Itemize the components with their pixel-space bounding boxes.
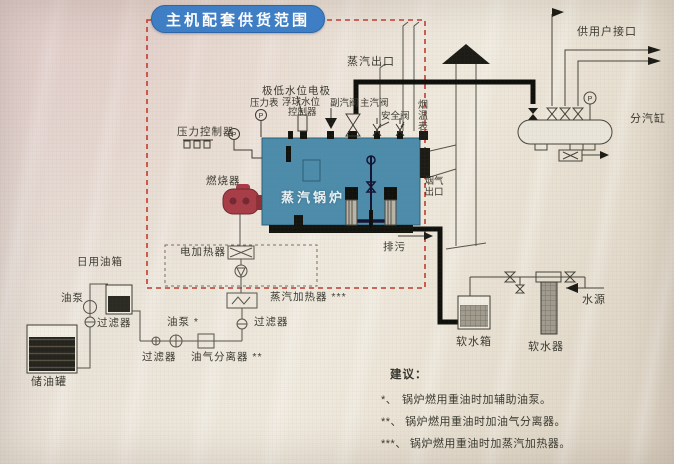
user-port-label: 供用户接口 [577, 26, 637, 38]
oil-pump-left-label: 油泵 [61, 293, 84, 305]
flue-outlet-duct [420, 148, 430, 178]
float-level-label-2: 控制器 [288, 108, 317, 118]
aux-steam-valve-label: 副汽阀 [330, 99, 359, 109]
flue-temp-gauge-label: 烟温表 [417, 100, 429, 133]
note-text: 锅炉燃用重油时加油气分离器。 [405, 416, 566, 428]
steam-heater-unit [227, 293, 257, 308]
vent-pennant [552, 8, 564, 17]
steam-heater-label: 蒸汽加热器 *** [270, 292, 347, 304]
cylinder-drain [559, 144, 609, 161]
filter-mid-label: 过滤器 [254, 317, 289, 329]
pressure-gauge-letter: P [259, 113, 264, 120]
filter-bottom-label: 过滤器 [142, 352, 177, 364]
note-text: 锅炉燃用重油时加蒸汽加热器。 [410, 438, 571, 450]
flue-outlet-label-1: 烟气 [420, 177, 448, 188]
user-port-arrow [648, 57, 661, 65]
steam-outlet-label: 蒸汽出口 [347, 56, 395, 68]
diagram-page: P P P 主机配套供货范围 蒸汽出口 供用户接口 分汽缸 极低水位电极 压力表… [0, 0, 674, 464]
steam-cylinder-label: 分汽缸 [630, 113, 666, 125]
flue-outlet-label-2: 出口 [420, 188, 448, 199]
chimney-cap [442, 44, 490, 64]
user-port-arrow [648, 46, 661, 54]
chimney [430, 44, 490, 249]
pressure-gauge-label: 压力表 [250, 99, 279, 109]
burner-label: 燃烧器 [206, 176, 241, 188]
boiler-base [269, 225, 413, 233]
storage-tank-label: 储油罐 [31, 376, 67, 388]
cylinder-gauge-letter: P [588, 96, 593, 103]
aux-steam-valve [325, 108, 337, 129]
water-softener-column [541, 282, 557, 334]
filter-left-label: 过滤器 [97, 318, 132, 330]
water-source-arrow [566, 283, 578, 293]
daily-oil-tank-label: 日用油箱 [77, 257, 123, 269]
diagram-canvas: P P P [0, 0, 674, 464]
burner [223, 184, 262, 246]
oil-pump-mid-label: 油泵 * [167, 317, 199, 329]
water-softener-label: 软水器 [528, 341, 564, 353]
supply-scope-title: 主机配套供货范围 [151, 5, 325, 33]
soft-water-tank-label: 软水箱 [456, 336, 492, 348]
blowdown-arrow [398, 232, 433, 240]
suggestions-title: 建议： [390, 366, 428, 382]
oil-gas-separator-label: 油气分离器 ** [191, 352, 263, 364]
feed-water-pipe [408, 229, 459, 322]
suggestion-note-1: *、锅炉燃用重油时加辅助油泵。 [381, 391, 552, 407]
note-text: 锅炉燃用重油时加辅助油泵。 [402, 394, 552, 406]
note-marker: ***、 [381, 435, 407, 451]
safety-valve-label: 安全阀 [381, 112, 410, 122]
main-steam-valve-label: 主汽阀 [360, 99, 389, 109]
electric-heater-label: 电加热器 [180, 247, 226, 259]
suggestion-note-3: ***、锅炉燃用重油时加蒸汽加热器。 [381, 435, 571, 451]
boiler-label: 蒸汽锅炉 [281, 187, 345, 206]
blowdown-label: 排污 [383, 242, 406, 254]
low-water-electrode-label: 极低水位电极 [262, 86, 331, 98]
water-source-label: 水源 [582, 294, 606, 306]
note-marker: *、 [381, 391, 399, 407]
suggestion-note-2: **、锅炉燃用重油时加油气分离器。 [381, 413, 566, 429]
pressure-controller-label: 压力控制器 [177, 127, 235, 139]
note-marker: **、 [381, 413, 402, 429]
